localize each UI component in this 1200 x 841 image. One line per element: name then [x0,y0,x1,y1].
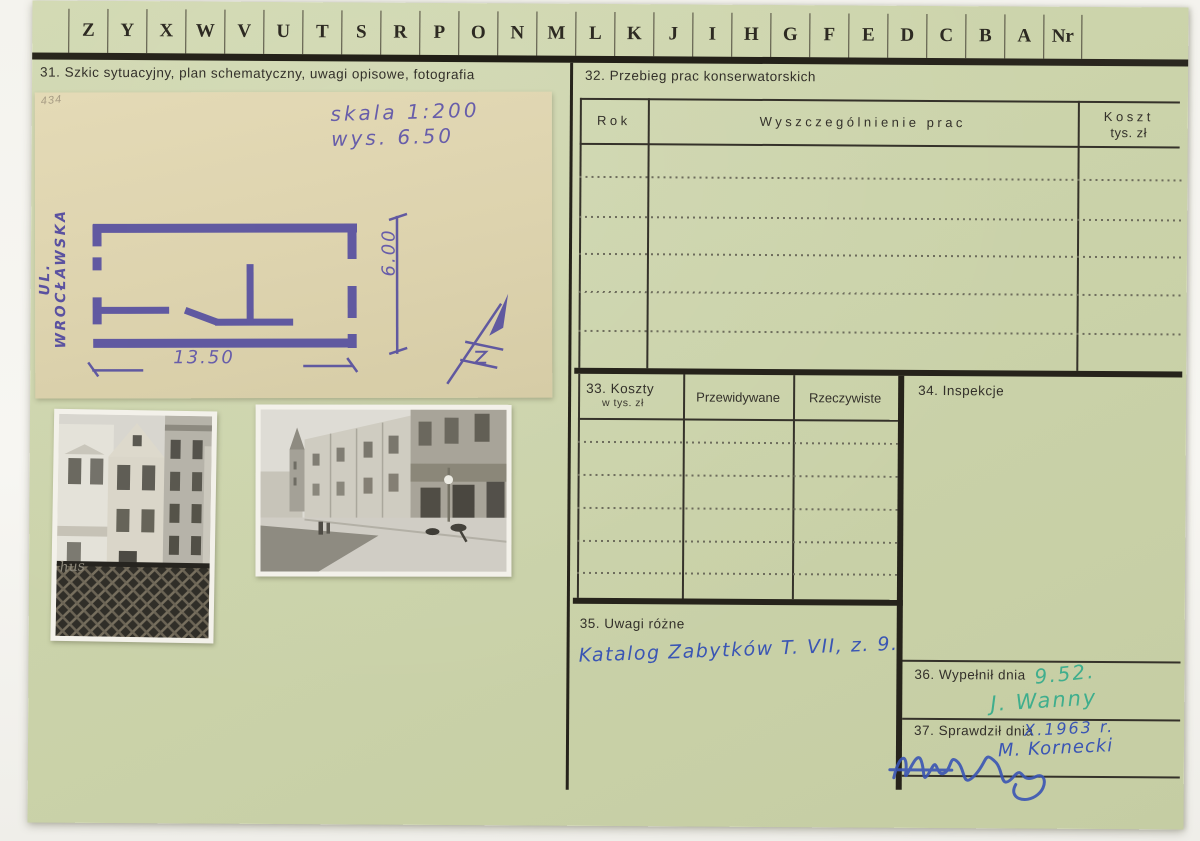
table33-row-rule [578,441,898,445]
section36-top-rule [902,660,1180,664]
section-32-label: 32. Przebieg prac konserwatorskich [585,68,816,84]
table33-header-rzeczywiste: Rzeczywiste [793,390,897,406]
table33-col2-rule [792,375,795,599]
index-letter-cell: C [926,14,965,58]
index-letter-cell: H [731,13,770,57]
table33-row-rule [577,507,897,511]
table32-row-rule [579,216,1183,222]
table33-bottom-rule [573,598,903,606]
index-letter-cell: L [575,12,614,56]
width-dimension: 13.50 [173,347,235,368]
index-letter-cell: S [341,10,380,54]
table33-row-rule [578,474,898,478]
table33-left-rule [577,374,580,598]
table33-row-rule [577,572,897,576]
index-letter-cell: A [1004,14,1043,58]
photo-facades: hus [50,409,217,644]
table32-row-rule [579,176,1183,182]
section34-left-rule [896,376,905,790]
table32-header-prace: Wyszczególnienie prac [648,113,1078,131]
table33-header-rule [578,418,898,422]
signature-scrawl [888,732,1079,817]
photo-street-image [260,410,506,572]
section-36-signature: J. Wanny [990,685,1098,716]
scale-note-line1: skala 1:200 [330,98,480,127]
table32-top-rule [580,98,1180,104]
section-36-label: 36. Wypełnił dnia [914,667,1025,683]
index-letter-cell: V [224,10,263,54]
photo-facades-image [55,414,212,639]
record-card: ZYXWVUTSRPONMLKJIHGFEDCBANr 31. Szkic sy… [28,0,1189,829]
index-letter-cell: W [185,9,224,53]
table32-header-koszt: Koszt [1078,109,1180,125]
index-letter-cell: F [809,13,848,57]
index-letter-cell: B [965,14,1004,58]
section-31-label: 31. Szkic sytuacyjny, plan schematyczny,… [40,65,475,83]
center-divider [566,63,573,790]
sketch-paper: 434 skala 1:200 wys. 6.50 UL. WROCŁAWSKA [35,92,553,399]
index-letter-cell: R [380,11,419,55]
index-letter-cell: Y [107,9,146,53]
index-letter-cell: G [770,13,809,57]
index-letter-cell: P [419,11,458,55]
section-34-label: 34. Inspekcje [918,383,1004,399]
photo-sign-text: hus [59,558,85,575]
index-letter-cell: E [848,13,887,57]
scale-note: skala 1:200 wys. 6.50 [330,98,480,152]
table32-bottom-rule [574,368,1182,378]
table32-row-rule [579,330,1183,336]
floor-plan-drawing [65,202,551,395]
table32-header-rok: Rok [580,113,648,128]
section-35-label: 35. Uwagi różne [580,616,685,632]
height-dimension: 6.00 [379,228,400,276]
index-letter-cell: U [263,10,302,54]
index-letter-cell: X [146,9,185,53]
index-letter-cell: M [536,12,575,56]
photo-street [255,405,511,577]
index-letter-cell: D [887,14,926,58]
pencil-number: 434 [40,93,63,107]
section-33-sublabel: w tys. zł [602,397,644,409]
table32-header-rule [580,143,1180,149]
street-name-label: UL. WROCŁAWSKA [37,188,59,368]
table32-left-rule [578,98,582,368]
index-letter-cell: Z [68,9,107,53]
index-letter-cell: O [458,11,497,55]
table32-header-koszt-sub: tys. zł [1078,125,1180,141]
index-letter-strip: ZYXWVUTSRPONMLKJIHGFEDCBANr [68,9,1082,59]
index-letter-cell: I [692,13,731,57]
table32-col-rok-rule [646,98,650,368]
index-letter-cell: Nr [1043,15,1082,59]
table33-col1-rule [682,374,685,598]
scale-note-line2: wys. 6.50 [331,123,481,152]
section-36-date: 9.52. [1033,659,1096,689]
section-35-handwritten-note: Katalog Zabytków T. VII, z. 9. [578,633,899,667]
section-33-label: 33. Koszty [586,381,654,396]
index-letter-cell: N [497,11,536,55]
table32-row-rule [579,253,1183,259]
table33-row-rule [577,540,897,544]
table32-col-koszt-rule [1076,101,1080,371]
index-letter-cell: J [653,12,692,56]
table32-row-rule [579,291,1183,297]
table33-header-przewidywane: Przewidywane [683,389,793,405]
index-letter-cell: T [302,10,341,54]
index-letter-cell: K [614,12,653,56]
